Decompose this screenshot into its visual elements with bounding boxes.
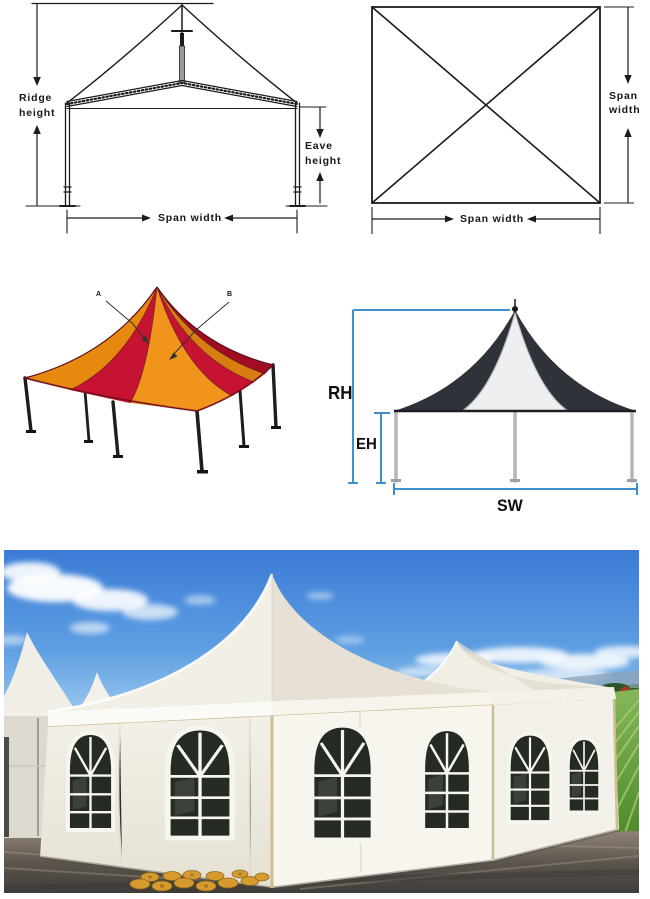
composite-image (0, 0, 650, 899)
callout-b-label: B (227, 291, 232, 298)
eave-height-label: Eave height (305, 139, 351, 169)
callout-a-label: A (96, 291, 101, 298)
top-view-diagram (372, 7, 634, 234)
span-width-label-side: Span width (152, 211, 228, 226)
span-width-label-topview-bottom: Span width (454, 212, 530, 227)
tent-specification-image: Ridge height Eave height Span width Span… (0, 0, 650, 899)
span-width-label-topview-right: Span width (609, 90, 650, 117)
ridge-height-label: Ridge height (19, 91, 67, 121)
side-view-diagram (26, 4, 327, 234)
eave-height-abbrev-label: EH (356, 436, 377, 454)
span-width-abbrev-label: SW (497, 496, 523, 516)
measured-diagram (348, 299, 637, 495)
ridge-height-abbrev-label: RH (328, 383, 352, 404)
tent-photo (0, 550, 650, 894)
pagoda-render (25, 287, 281, 474)
